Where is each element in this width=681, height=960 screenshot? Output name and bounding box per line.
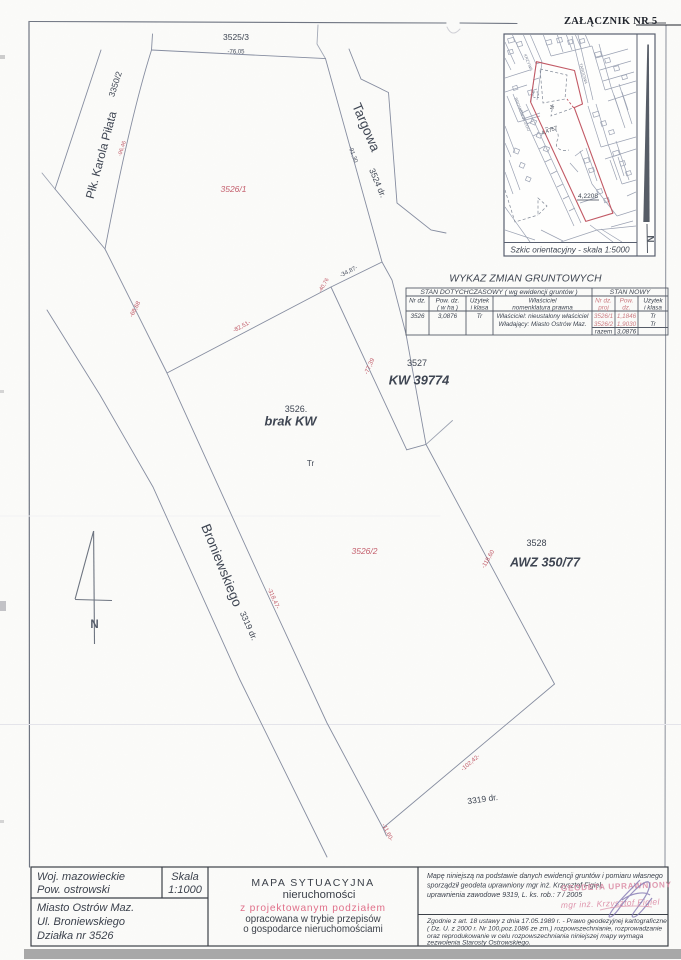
svg-text:3526: 3526 (410, 313, 425, 320)
svg-text:1:1000: 1:1000 (168, 884, 203, 896)
svg-text:3525/3: 3525/3 (223, 32, 249, 42)
svg-text:1,1846: 1,1846 (617, 313, 637, 320)
svg-text:3526/1: 3526/1 (594, 313, 613, 320)
svg-text:nieruchomości: nieruchomości (283, 889, 356, 901)
svg-text:AWZ 350/77: AWZ 350/77 (509, 556, 581, 570)
svg-text:Szkic orientacyjny - skala: Szkic orientacyjny - skala 1:5000 (510, 246, 630, 255)
svg-text:KW 39774: KW 39774 (389, 373, 449, 388)
svg-text:Tr: Tr (477, 313, 483, 320)
svg-text:i klasa: i klasa (471, 305, 489, 312)
svg-text:Skala: Skala (171, 871, 199, 883)
svg-text:3526/2: 3526/2 (594, 321, 614, 328)
svg-text:dz.: dz. (622, 305, 630, 312)
svg-text:Tr: Tr (307, 459, 315, 468)
svg-text:3526/2: 3526/2 (352, 546, 378, 556)
svg-text:proj: proj (597, 305, 609, 312)
svg-text:Nr dz.: Nr dz. (409, 298, 426, 305)
svg-text:i klasa: i klasa (644, 305, 662, 312)
svg-text:4,2208: 4,2208 (578, 193, 598, 200)
svg-text:N: N (90, 619, 98, 631)
svg-text:Pow. dz.: Pow. dz. (436, 298, 460, 305)
svg-text:nomenklatura prawna: nomenklatura prawna (512, 305, 573, 312)
svg-text:MAPA SYTUACYJNA: MAPA SYTUACYJNA (251, 877, 374, 889)
svg-text:STAN DOTYCHCZASOWY ( wg ewi: STAN DOTYCHCZASOWY ( wg ewidencji gruntó… (420, 289, 577, 296)
svg-text:Władający: Miasto Ostrów Maz.: Władający: Miasto Ostrów Maz. (498, 321, 586, 328)
svg-text:Działka nr 3526: Działka nr 3526 (37, 930, 114, 942)
svg-text:1,9030: 1,9030 (617, 321, 637, 328)
svg-text:z projektowanym podziałem: z projektowanym podziałem (240, 903, 386, 914)
svg-text:3528: 3528 (526, 538, 546, 548)
svg-text:WYKAZ ZMIAN GRUNTOWYCH: WYKAZ ZMIAN GRUNTOWYCH (449, 274, 602, 285)
svg-text:3526/1: 3526/1 (221, 184, 247, 194)
svg-text:Nr dz.: Nr dz. (595, 298, 612, 305)
svg-text:Zgodnie z art. 18 ustawy z dni: Zgodnie z art. 18 ustawy z dnia 17.05.19… (426, 918, 667, 925)
svg-text:o gospodarce nieruchomościami: o gospodarce nieruchomościami (243, 924, 382, 935)
svg-text:STAN NOWY: STAN NOWY (610, 289, 651, 296)
svg-text:brak KW: brak KW (265, 414, 318, 429)
svg-text:3527: 3527 (407, 358, 427, 368)
svg-text:Tr: Tr (650, 321, 656, 328)
svg-text:3,0876: 3,0876 (617, 329, 637, 336)
svg-text:( w ha ): ( w ha ) (437, 305, 458, 312)
svg-text:3,0876: 3,0876 (438, 313, 458, 320)
svg-text:Właściciel: nieustalony właści: Właściciel: nieustalony właściciel (497, 313, 589, 320)
svg-text:Tr: Tr (650, 313, 656, 320)
svg-text:-76,05: -76,05 (227, 50, 245, 56)
svg-text:Miasto Ostrów Maz.: Miasto Ostrów Maz. (37, 902, 134, 914)
svg-text:uprawnienia zawodowe 9319, L: uprawnienia zawodowe 9319, L. ks. rob.: … (427, 892, 582, 899)
svg-text:Woj. mazowieckie: Woj. mazowieckie (37, 871, 125, 883)
svg-text:3r: 3r (550, 105, 555, 111)
svg-text:Użytek: Użytek (470, 298, 490, 305)
svg-text:Pow. ostrowski: Pow. ostrowski (37, 884, 110, 896)
svg-text:Pow.: Pow. (620, 298, 634, 305)
svg-text:Właściciel: Właściciel (529, 298, 558, 305)
svg-text:( Dz. U. z 2000 r. Nr 100,poz.: ( Dz. U. z 2000 r. Nr 100,poz.1086 ze zm… (427, 926, 662, 933)
svg-text:3526.: 3526. (285, 404, 308, 414)
svg-text:razem: razem (595, 329, 613, 336)
svg-text:N: N (644, 235, 655, 242)
svg-text:Użytek: Użytek (643, 298, 663, 305)
svg-text:Ul. Broniewskiego: Ul. Broniewskiego (37, 916, 125, 928)
svg-text:zezwolenia Starosty Ostrowskie: zezwolenia Starosty Ostrowskiego. (426, 940, 531, 947)
svg-text:Mapę niniejszą na podstawie da: Mapę niniejszą na podstawie danych ewide… (427, 873, 663, 880)
